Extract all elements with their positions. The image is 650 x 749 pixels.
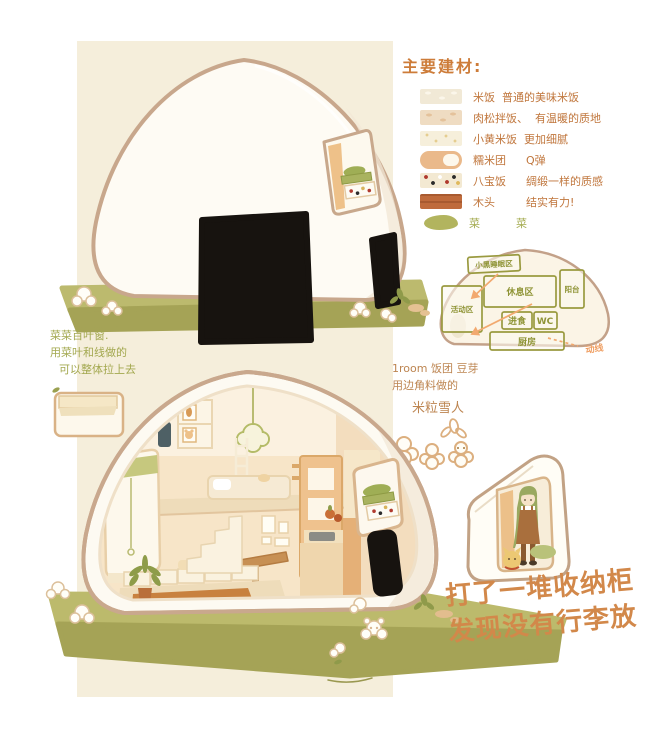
- glutinous-rice-ball-swatch: [420, 151, 462, 169]
- material-desc: Q弹: [526, 152, 546, 168]
- material-name: 米饭: [473, 89, 495, 105]
- blind-note-line: 用菜叶和线做的: [50, 344, 136, 361]
- legend-title: 主要建材:: [402, 53, 648, 77]
- illustration-page: 主要建材: 米饭 普通的美味米饭 肉松拌饭、 有温暖的质地 小黄米饭 更加细腻 …: [0, 0, 650, 749]
- plan-label-kitchen: 厨房: [518, 336, 536, 348]
- floor-plan-diagram: 小黑睡眠区 休息区 阳台 活动区 进食 WC 厨房 动线: [428, 246, 626, 360]
- veggie-window: [354, 460, 402, 536]
- plan-label-activity: 活动区: [451, 304, 474, 314]
- legend-row: 米饭 普通的美味米饭: [420, 86, 648, 107]
- legend-row: 木头 结实有力!: [420, 191, 648, 212]
- eight-treasure-rice-swatch: [420, 173, 462, 188]
- material-desc: 结实有力!: [526, 194, 574, 210]
- nori-door: [201, 214, 311, 342]
- plan-label-dining: 进食: [508, 315, 527, 327]
- pebble-icon: [408, 304, 424, 312]
- material-name: 糯米团: [473, 152, 519, 168]
- materials-legend: 主要建材: 米饭 普通的美味米饭 肉松拌饭、 有温暖的质地 小黄米饭 更加细腻 …: [402, 53, 648, 233]
- legend-row: 肉松拌饭、 有温暖的质地: [420, 107, 648, 128]
- legend-row: 八宝饭 绸缎一样的质感: [420, 170, 648, 191]
- wood-swatch: [420, 194, 462, 209]
- blind-note-line: 菜菜百叶窗.: [50, 327, 136, 344]
- millet-rice-swatch: [420, 131, 462, 146]
- material-name: 肉松拌饭、: [473, 110, 528, 126]
- material-name: 木头: [473, 194, 519, 210]
- loft-bed: [208, 474, 290, 499]
- material-desc: 普通的美味米饭: [502, 89, 579, 105]
- nori-patch-right: [372, 235, 398, 306]
- legend-row: 小黄米饭 更加细腻: [420, 128, 648, 149]
- plain-rice-swatch: [420, 89, 462, 104]
- material-name: 八宝饭: [473, 173, 519, 189]
- plan-label-sleep: 小黑睡眠区: [475, 258, 513, 270]
- plan-label-wc: WC: [537, 317, 554, 327]
- plan-label-rest: 休息区: [505, 286, 533, 298]
- pork-floss-rice-swatch: [420, 110, 462, 125]
- material-desc: 有温暖的质地: [535, 110, 601, 126]
- material-desc: 更加细腻: [524, 131, 568, 147]
- material-desc: 菜: [516, 215, 527, 231]
- material-name: 小黄米饭: [473, 131, 517, 147]
- vegetable-icon: [334, 514, 342, 522]
- material-desc: 绸缎一样的质感: [526, 173, 603, 189]
- material-name: 菜: [469, 215, 509, 231]
- legend-row: 菜 菜: [420, 212, 648, 233]
- onigiri-house-exterior-illustration: [48, 50, 438, 350]
- vegetable-swatch: [424, 215, 458, 230]
- legend-rows: 米饭 普通的美味米饭 肉松拌饭、 有温暖的质地 小黄米饭 更加细腻 糯米团 Q弹…: [420, 86, 648, 233]
- plan-label-balcony: 阳台: [565, 284, 580, 294]
- legend-row: 糯米团 Q弹: [420, 149, 648, 170]
- kitchen-counter: [300, 518, 361, 604]
- green-cushion: [530, 545, 556, 559]
- veggie-window: [324, 131, 380, 215]
